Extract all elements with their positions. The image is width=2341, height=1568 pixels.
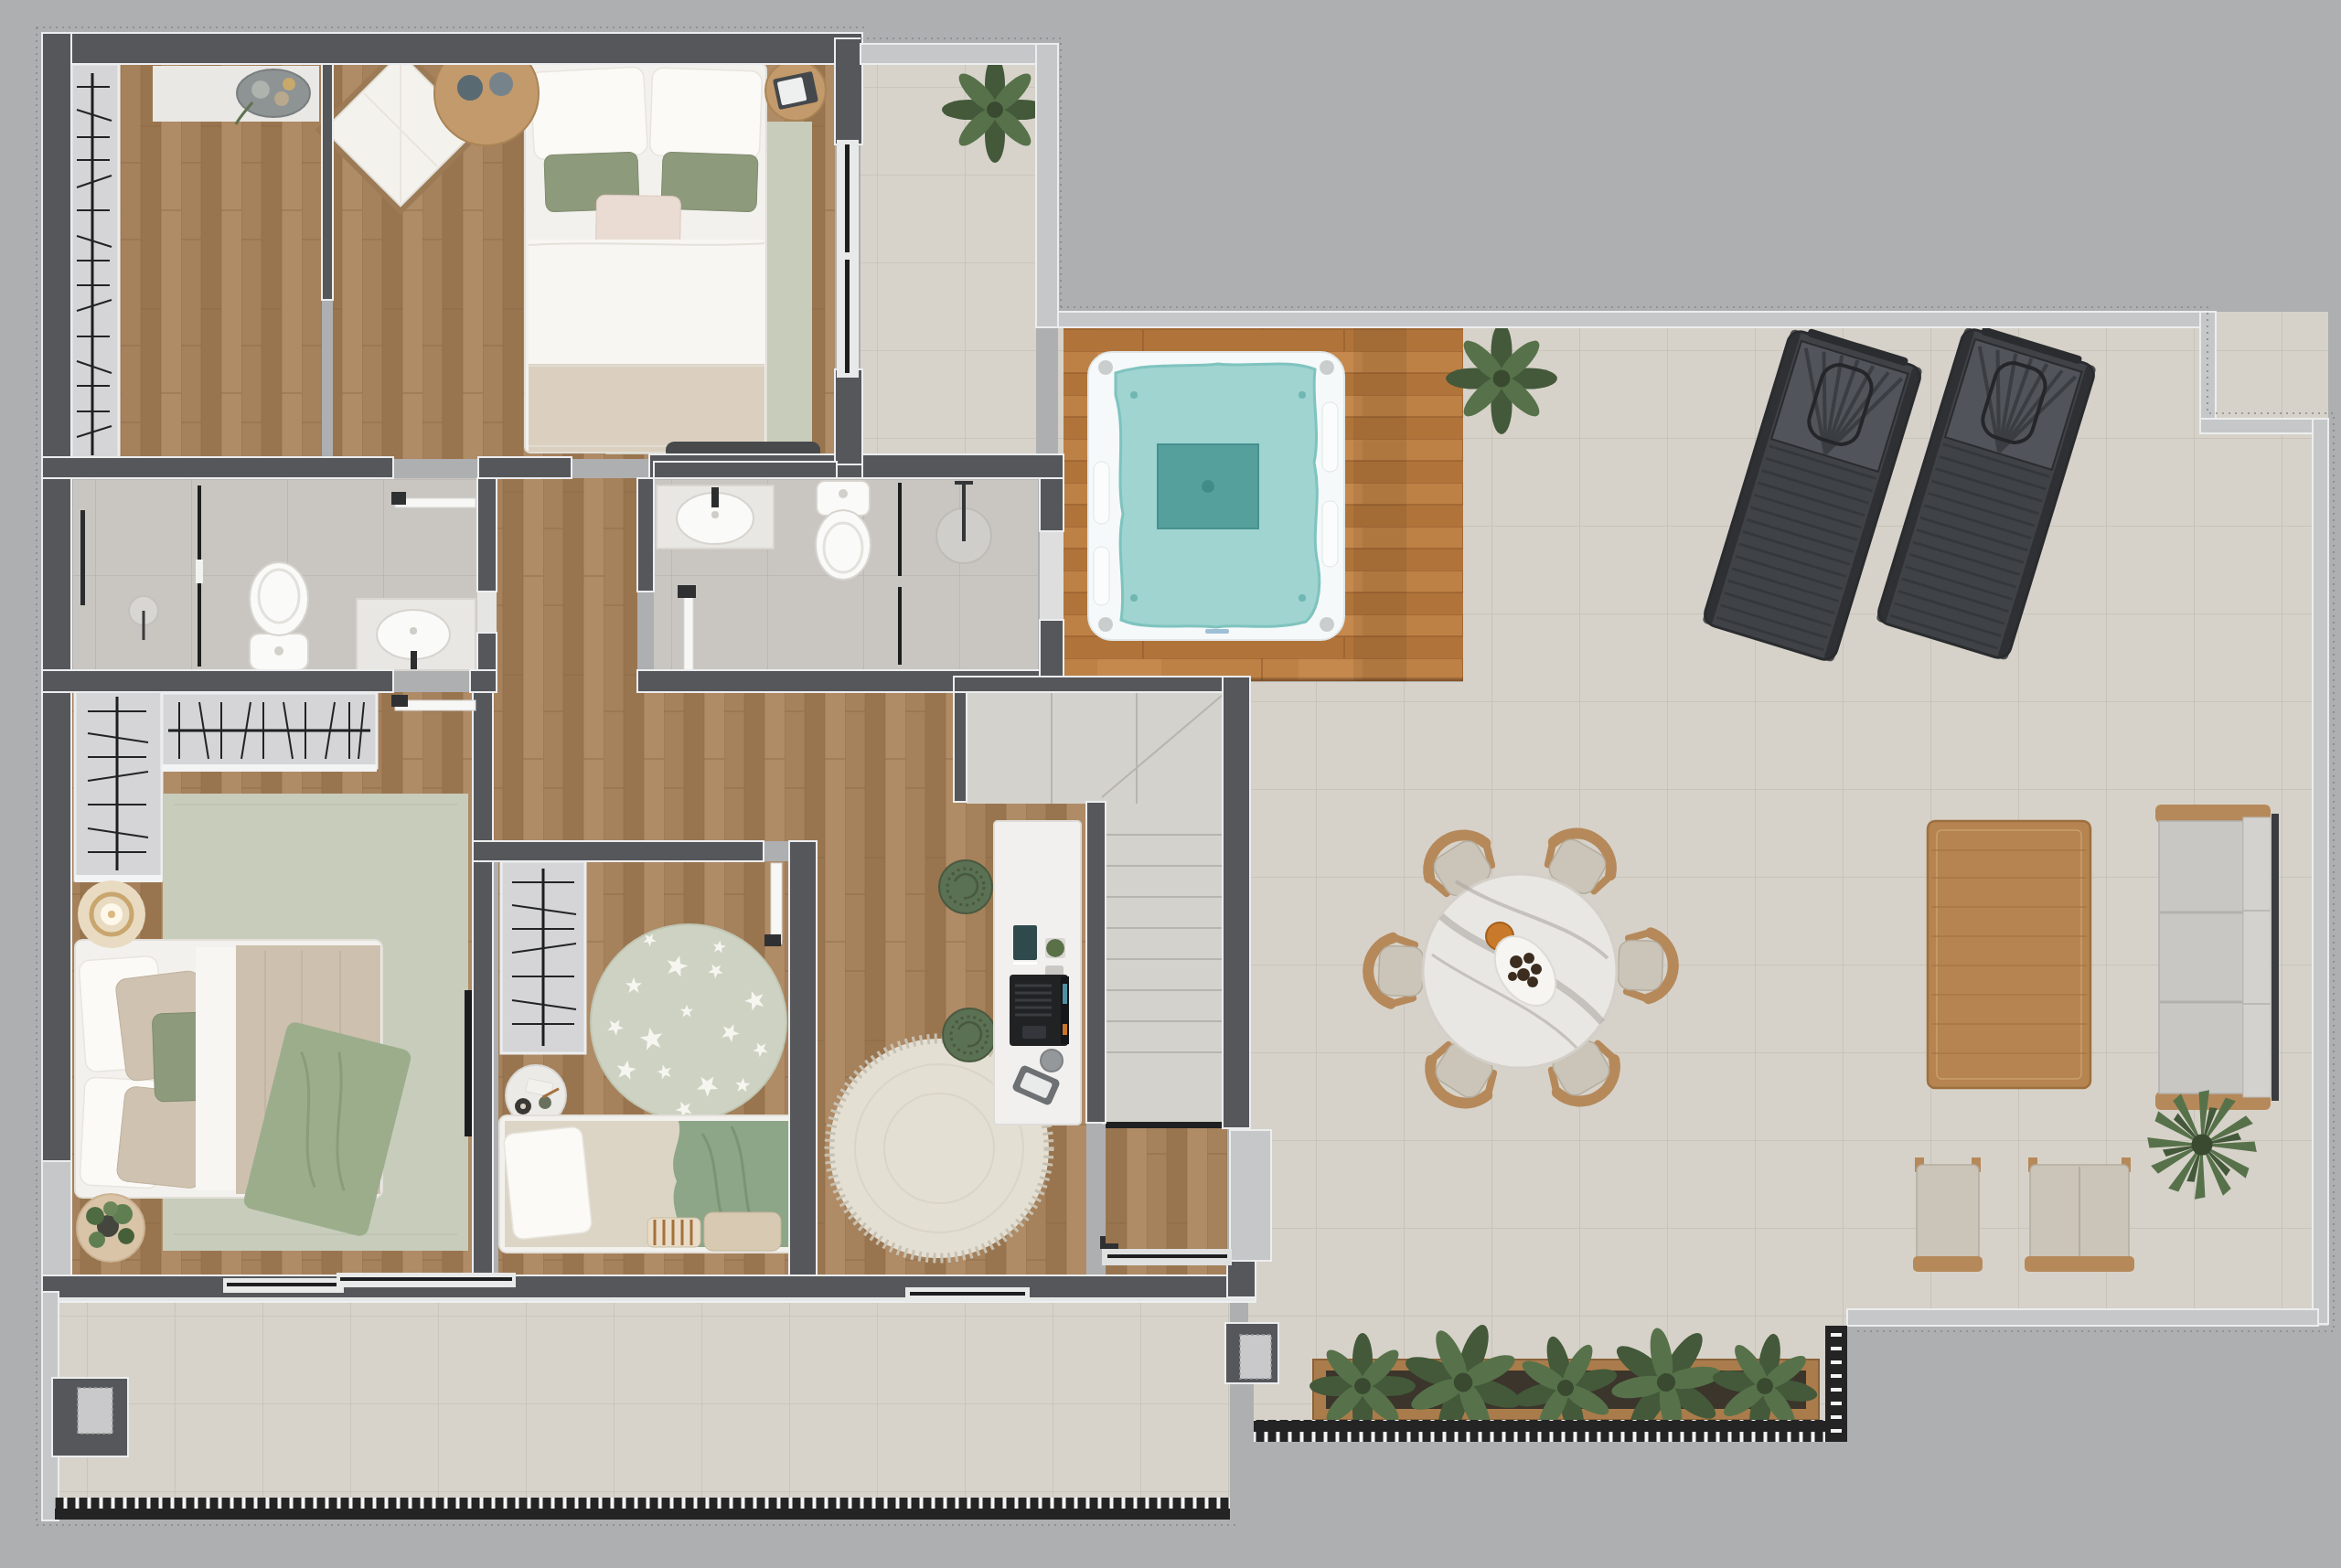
outdoor-chair-2 [2025,1157,2134,1272]
bathroom-1-doorway [477,592,497,633]
south-balcony-floor [48,1292,1230,1501]
master-wardrobe-vertical [75,688,162,882]
terrace-access-opening [1230,1130,1271,1261]
bathroom-1-door [395,498,476,507]
bedroom-1-floor [119,64,322,463]
toilet-2 [816,481,871,580]
hot-tub-logo [1205,629,1229,634]
bedroom-2-east-window [837,140,859,378]
bedside-lamp-table [78,880,145,948]
outdoor-chair-1 [1913,1157,1983,1272]
kids-bed [499,1115,797,1253]
knit-pouf-1 [939,860,992,913]
faucet-1 [411,651,417,669]
stair-threshold [1106,1122,1227,1128]
outdoor-sofa [2155,805,2279,1110]
master-bed [75,940,412,1238]
balcony-pillar [52,1378,128,1456]
hot-tub [1088,352,1344,640]
dining-table [1423,874,1617,1068]
desk-plant [1046,939,1064,957]
hall-between-baths-floor [497,478,637,692]
towel-rail-1 [80,510,85,605]
kids-star-rug [591,924,786,1120]
vanity-1 [357,599,476,670]
bed-2 [525,64,766,453]
plant-side-rug [77,1194,144,1262]
balcony-railing [55,1498,1230,1520]
terrace-railing-east [1825,1326,1847,1442]
west-wall-lower [42,1161,71,1292]
master-wardrobe-horizontal [162,693,377,772]
vanity-2 [657,485,774,549]
coffee-table [1928,821,2090,1088]
bed-2-throw [529,364,764,452]
laptop [1010,975,1069,1046]
toilet-1 [250,562,308,670]
bedroom-1-wardrobe [71,64,119,463]
south-window-kids [905,1287,1030,1302]
terrace-pillar [1225,1323,1278,1383]
knit-pouf-2 [943,1008,996,1061]
floor-plan [0,0,2341,1568]
built-in-desk [994,821,1081,1125]
deck-doorway [1040,528,1064,620]
faucet-2 [711,487,719,507]
kids-wardrobe [501,861,585,1053]
terrace-railing [1254,1420,1845,1442]
kids-door [771,863,782,944]
notebook [1013,925,1037,960]
bedroom-1 [153,66,319,124]
bedside-table-right [765,60,826,121]
